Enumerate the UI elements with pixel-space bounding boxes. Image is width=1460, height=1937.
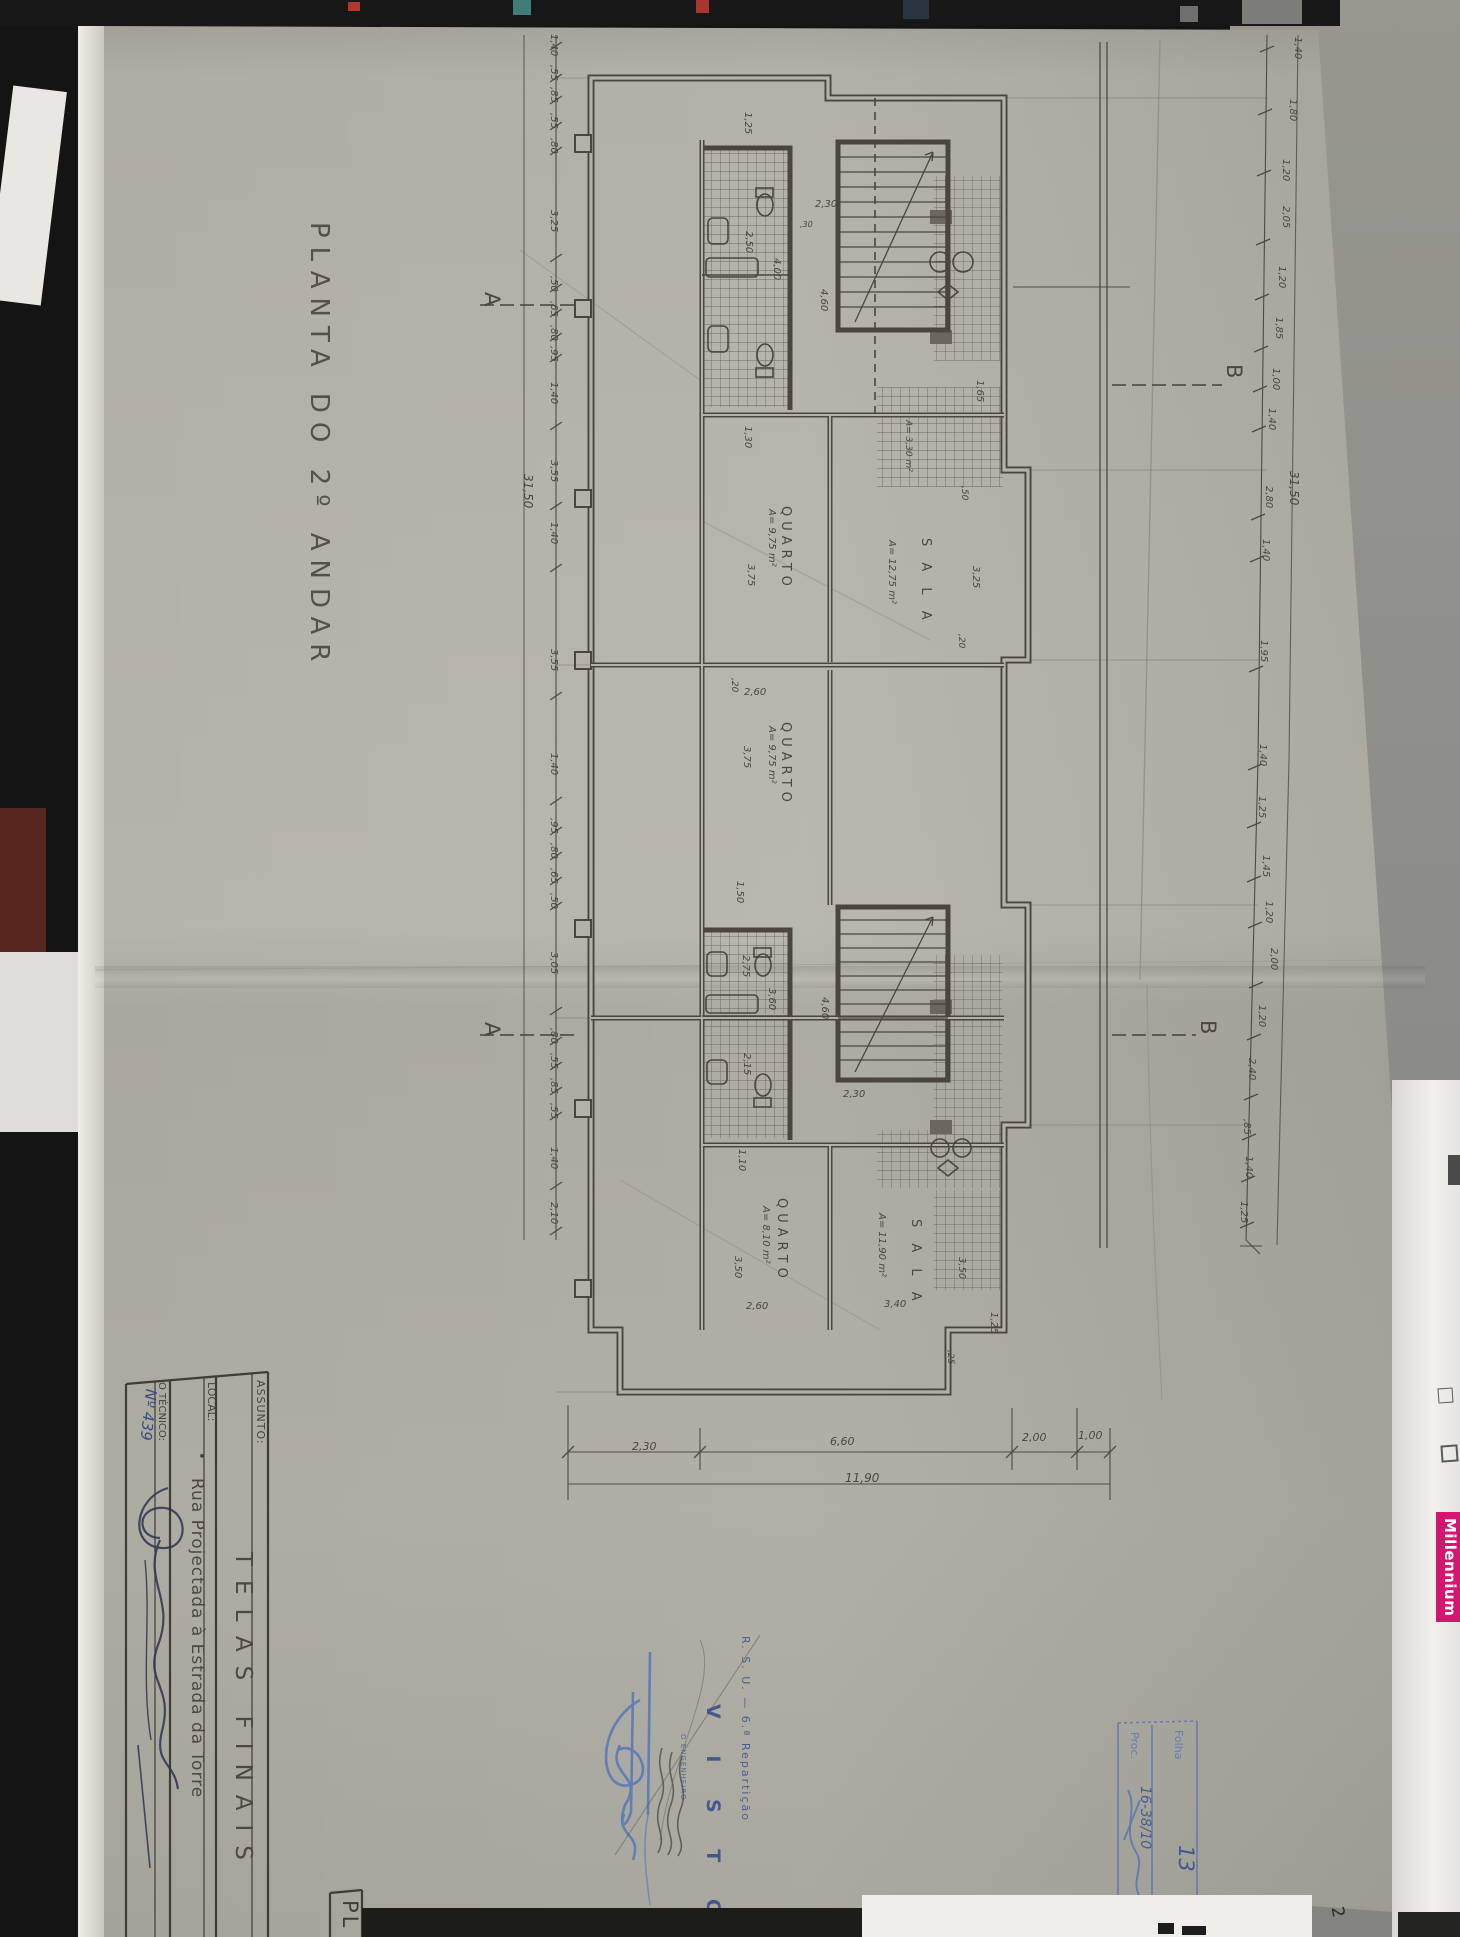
dimension-chain-right: 2,40 xyxy=(1246,1058,1256,1080)
dimension-chain-right: 1,20 xyxy=(1263,901,1273,923)
dimension-label: 2,15 xyxy=(741,1053,751,1075)
dimension-label: ,20 xyxy=(956,634,965,648)
dimension-chain-left: 1,40 xyxy=(548,522,558,544)
dimension-label: 3,50 xyxy=(956,1257,966,1279)
room-label: A= 3,30 m² xyxy=(903,420,912,472)
dimension-label: 1,10 xyxy=(736,1149,746,1171)
section-marker: B xyxy=(1223,364,1244,378)
page-title: PLANTA DO 2º ANDAR xyxy=(304,222,334,670)
dimension-label: 4,60 xyxy=(819,997,829,1019)
dimension-chain-right: 1,40 xyxy=(1292,37,1302,59)
room-label: A= 9,75 m² xyxy=(766,726,776,784)
dimension-chain-left: 3,55 xyxy=(548,649,558,671)
dimension-chain-left: ,95 xyxy=(548,346,558,362)
visto-stamp-word: V I S T O xyxy=(703,1704,722,1930)
folha-number-handwritten: 13 xyxy=(1175,1845,1196,1872)
room-label: S A L A xyxy=(909,1219,922,1307)
dimension-chain-left: ,55 xyxy=(548,1103,558,1119)
dimension-chain-right: 1,40 xyxy=(1260,539,1270,561)
dimension-total-left: 31,50 xyxy=(522,474,534,508)
dimension-chain-bottom: 1,00 xyxy=(1078,1430,1103,1441)
millennium-brand-banner: Millennium xyxy=(1436,1512,1460,1622)
dimension-chain-right: 2,00 xyxy=(1268,948,1278,970)
photographed-floor-plan: PLANTA DO 2º ANDAR QUARTOA= 9,75 m²QUART… xyxy=(0,0,1460,1937)
dimension-chain-right: 1,20 xyxy=(1276,266,1286,288)
titleblock-local-value: Rua Projectada à Estrada da Torre xyxy=(187,1478,207,1798)
dimension-chain-left: ,55 xyxy=(548,1053,558,1069)
dimension-label: 2,30 xyxy=(815,200,837,210)
dimension-total-right: 31,50 xyxy=(1288,471,1300,505)
dimension-label: 2,60 xyxy=(744,688,766,698)
dimension-chain-left: ,80 xyxy=(548,325,558,341)
dimension-label: ,30 xyxy=(800,221,813,229)
dimension-chain-left: ,65 xyxy=(548,868,558,884)
dimension-chain-left: 1,40 xyxy=(548,753,558,775)
photo-bottom-edge xyxy=(362,1908,862,1937)
dimension-chain-left: ,80 xyxy=(548,1028,558,1044)
dimension-chain-right: 1,00 xyxy=(1270,368,1280,390)
dimension-chain-left: ,80 xyxy=(548,843,558,859)
dimension-label: 3,60 xyxy=(766,988,776,1010)
proc-number-handwritten: 16-38/10 xyxy=(1138,1786,1152,1849)
dimension-chain-left: ,55 xyxy=(548,113,558,129)
dimension-label: 1,65 xyxy=(974,380,984,402)
dimension-chain-left: ,85 xyxy=(548,87,558,103)
room-label: A= 11,90 m² xyxy=(876,1213,886,1277)
room-label: A= 12,75 m² xyxy=(886,540,896,604)
dimension-chain-right: ,85 xyxy=(1241,1119,1251,1135)
bottom-mark xyxy=(1158,1923,1174,1934)
dimension-chain-right: 2,80 xyxy=(1263,486,1273,508)
dimension-chain-right: 1,40 xyxy=(1243,1156,1253,1178)
titleblock-sheet-code: PL xyxy=(338,1900,362,1930)
dimension-chain-right: 1,20 xyxy=(1280,159,1290,181)
dimension-chain-bottom: 6,60 xyxy=(830,1436,855,1447)
dimension-chain-left: ,50 xyxy=(548,276,558,292)
titleblock-local-label: LOCAL: xyxy=(205,1382,218,1421)
bottom-mark xyxy=(1398,1912,1460,1937)
dimension-label: 2,60 xyxy=(746,1302,768,1312)
titleblock-local-bullet: • xyxy=(193,1452,208,1460)
dimension-chain-right: 1,95 xyxy=(1258,640,1268,662)
dimension-chain-bottom: 2,30 xyxy=(632,1441,657,1452)
dimension-chain-left: 3,55 xyxy=(548,460,558,482)
dimension-chain-left: ,85 xyxy=(548,1078,558,1094)
dimension-label: ,50 xyxy=(959,486,968,500)
dimension-chain-left: ,50 xyxy=(548,893,558,909)
dimension-label: ,25 xyxy=(945,1350,954,1364)
dimension-chain-right: 1,80 xyxy=(1287,99,1297,121)
dimension-chain-right: 1,40 xyxy=(1266,408,1276,430)
titleblock-assunto-label: ASSUNTO: xyxy=(254,1380,267,1445)
dimension-total-bottom: 11,90 xyxy=(845,1472,879,1484)
floor-plan-linework xyxy=(0,0,1460,1937)
dimension-chain-left: 1,40 xyxy=(548,1147,558,1169)
dimension-label: 1,30 xyxy=(742,426,752,448)
adjacent-document xyxy=(1392,1080,1460,1937)
dimension-label: 3,75 xyxy=(745,564,755,586)
dimension-label: 3,25 xyxy=(970,566,980,588)
section-marker: A xyxy=(481,1022,502,1036)
dimension-label: 2,30 xyxy=(843,1090,865,1100)
dimension-chain-bottom: 2,00 xyxy=(1022,1432,1047,1443)
dimension-label: 4,00 xyxy=(771,258,781,280)
room-label: QUARTO xyxy=(779,506,792,591)
adjacent-document-block xyxy=(1448,1155,1460,1185)
room-label: QUARTO xyxy=(775,1198,788,1283)
folha-stamp-label: Folha xyxy=(1173,1730,1184,1759)
section-marker: B xyxy=(1197,1020,1218,1034)
visto-stamp-org: R. S. U. — 6.ª Repartição xyxy=(740,1636,751,1822)
dimension-label: 3,50 xyxy=(732,1256,742,1278)
dimension-chain-right: 1,25 xyxy=(1238,1201,1248,1223)
dimension-label: ,20 xyxy=(729,678,738,692)
titleblock-assunto-value: TELAS FINAIS xyxy=(230,1552,256,1874)
dimension-chain-left: ,95 xyxy=(548,818,558,834)
room-label: QUARTO xyxy=(779,722,792,807)
proc-stamp-label: Proc. xyxy=(1129,1732,1140,1759)
dimension-chain-right: 1,20 xyxy=(1256,1005,1266,1027)
room-label: S A L A xyxy=(919,538,932,626)
dimension-label: 1,25 xyxy=(742,112,752,134)
section-marker: A xyxy=(481,292,502,306)
dimension-chain-left: 3,05 xyxy=(548,952,558,974)
checkbox-icon xyxy=(1440,1444,1458,1462)
dimension-label: 3,75 xyxy=(741,746,751,768)
dimension-chain-left: 2,10 xyxy=(548,1202,558,1224)
dimension-label: 1,50 xyxy=(734,881,744,903)
dimension-chain-left: 3,25 xyxy=(548,210,558,232)
dimension-chain-right: 2,05 xyxy=(1280,206,1290,228)
dimension-chain-right: 1,40 xyxy=(1257,744,1267,766)
dimension-label: 1,25 xyxy=(988,1312,998,1334)
dimension-chain-right: 1,45 xyxy=(1260,855,1270,877)
dimension-label: 3,40 xyxy=(884,1300,906,1310)
dimension-chain-right: 1,25 xyxy=(1256,796,1266,818)
dimension-chain-left: 1,40 xyxy=(548,34,558,56)
dimension-chain-left: ,80 xyxy=(548,138,558,154)
dimension-chain-left: 1,40 xyxy=(548,382,558,404)
room-label: A= 9,75 m² xyxy=(766,509,776,567)
dimension-label: 4,60 xyxy=(818,289,828,311)
bottom-mark xyxy=(1182,1926,1206,1935)
dimension-chain-left: ,65 xyxy=(548,301,558,317)
checkbox-icon xyxy=(1437,1387,1453,1403)
visto-stamp-signer: O ENGENHEIRO xyxy=(679,1734,686,1801)
dimension-chain-left: ,55 xyxy=(548,65,558,81)
dimension-label: 2,50 xyxy=(743,231,753,253)
dimension-label: 2,75 xyxy=(740,955,750,977)
room-label: A= 8,10 m² xyxy=(760,1206,770,1264)
dimension-chain-right: 1,85 xyxy=(1273,317,1283,339)
photo-bottom-paper xyxy=(862,1895,1312,1937)
